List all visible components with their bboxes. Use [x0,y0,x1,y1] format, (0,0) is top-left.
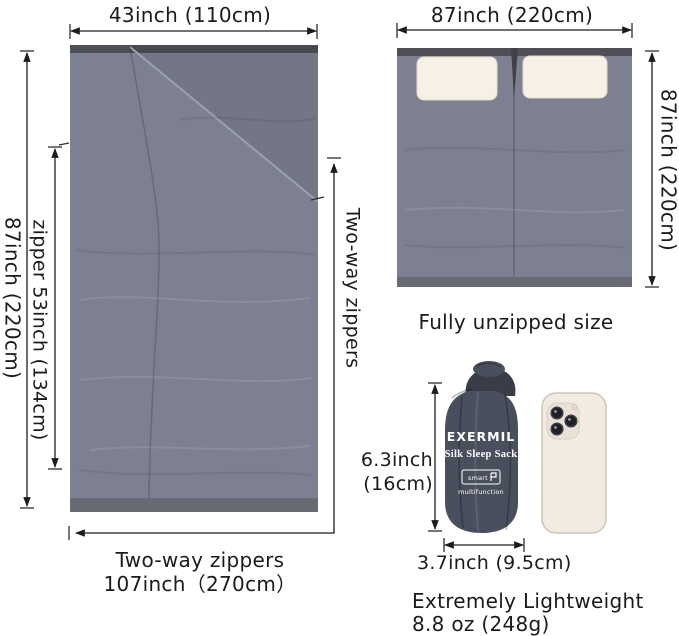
logo-subtext: multifunction [458,488,504,496]
weight-caption-line2: 8.8 oz (248g) [412,612,550,636]
zipper-length-label: zipper 53inch (134cm) [29,219,51,440]
weight-caption-line1: Extremely Lightweight [412,589,644,613]
logo-text: smart [468,474,488,482]
unzipped-caption: Fully unzipped size [418,310,613,334]
product-dimension-diagram: 43inch (110cm) 87inch (220c [0,0,679,636]
camera-lens-icon [551,407,563,419]
unzipped-height-label: 87inch (220cm) [657,89,679,251]
stuff-sack-width-label: 3.7inch (9.5cm) [417,552,572,574]
side-zipper-label: Two-way zippers [342,207,364,369]
camera-flash-icon [572,405,577,410]
pillow-pocket-left [417,57,497,100]
stuff-sack-height-label-line2: (16cm) [363,473,433,495]
bottom-zipper-caption-line2: 107inch（270cm） [104,572,297,596]
stuff-sack-height-label-line1: 6.3inch [361,449,433,471]
phone-photo [542,393,606,533]
unzipped-photo [397,48,632,287]
pillow-pocket-right [523,56,607,98]
camera-lens-icon [551,423,563,435]
unzipped-width-label: 87inch (220cm) [431,3,593,27]
stuff-sack-product-name: Silk Sleep Sack [445,449,518,460]
flat-sack-width-label: 43inch (110cm) [109,3,271,27]
bottom-zipper-caption-line1: Two-way zippers [115,548,285,572]
camera-lens-icon [565,415,577,427]
stuff-sack-brand: EXERMIL [447,429,515,444]
flat-sack-photo [70,45,318,512]
flat-sack-height-label: 87inch (220cm) [1,217,25,379]
